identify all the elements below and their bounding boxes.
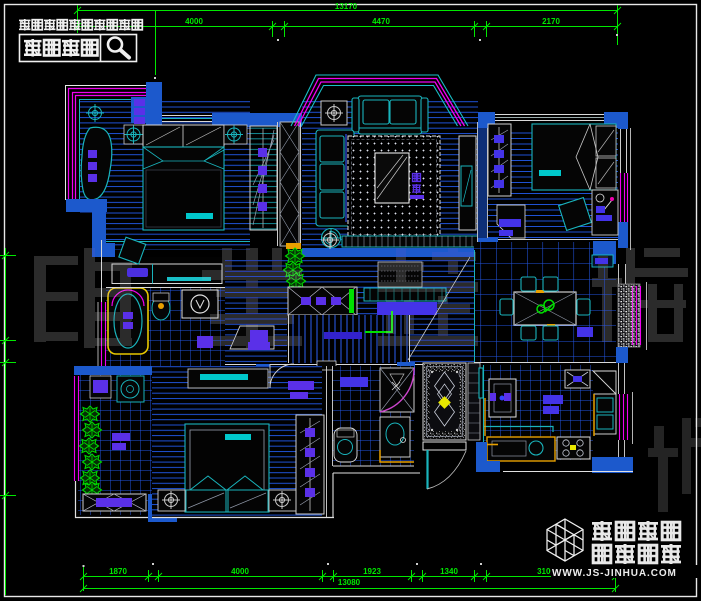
svg-text:4000: 4000 bbox=[185, 17, 203, 26]
svg-text:1923: 1923 bbox=[363, 567, 381, 576]
svg-text:1340: 1340 bbox=[440, 567, 458, 576]
svg-text:13170: 13170 bbox=[335, 2, 358, 11]
svg-text:WWW.JS-JINHUA.COM: WWW.JS-JINHUA.COM bbox=[552, 568, 677, 579]
svg-text:2170: 2170 bbox=[542, 17, 560, 26]
svg-text:4000: 4000 bbox=[231, 567, 249, 576]
svg-text:4470: 4470 bbox=[372, 17, 390, 26]
svg-text:13080: 13080 bbox=[338, 578, 361, 587]
svg-text:1870: 1870 bbox=[109, 567, 127, 576]
